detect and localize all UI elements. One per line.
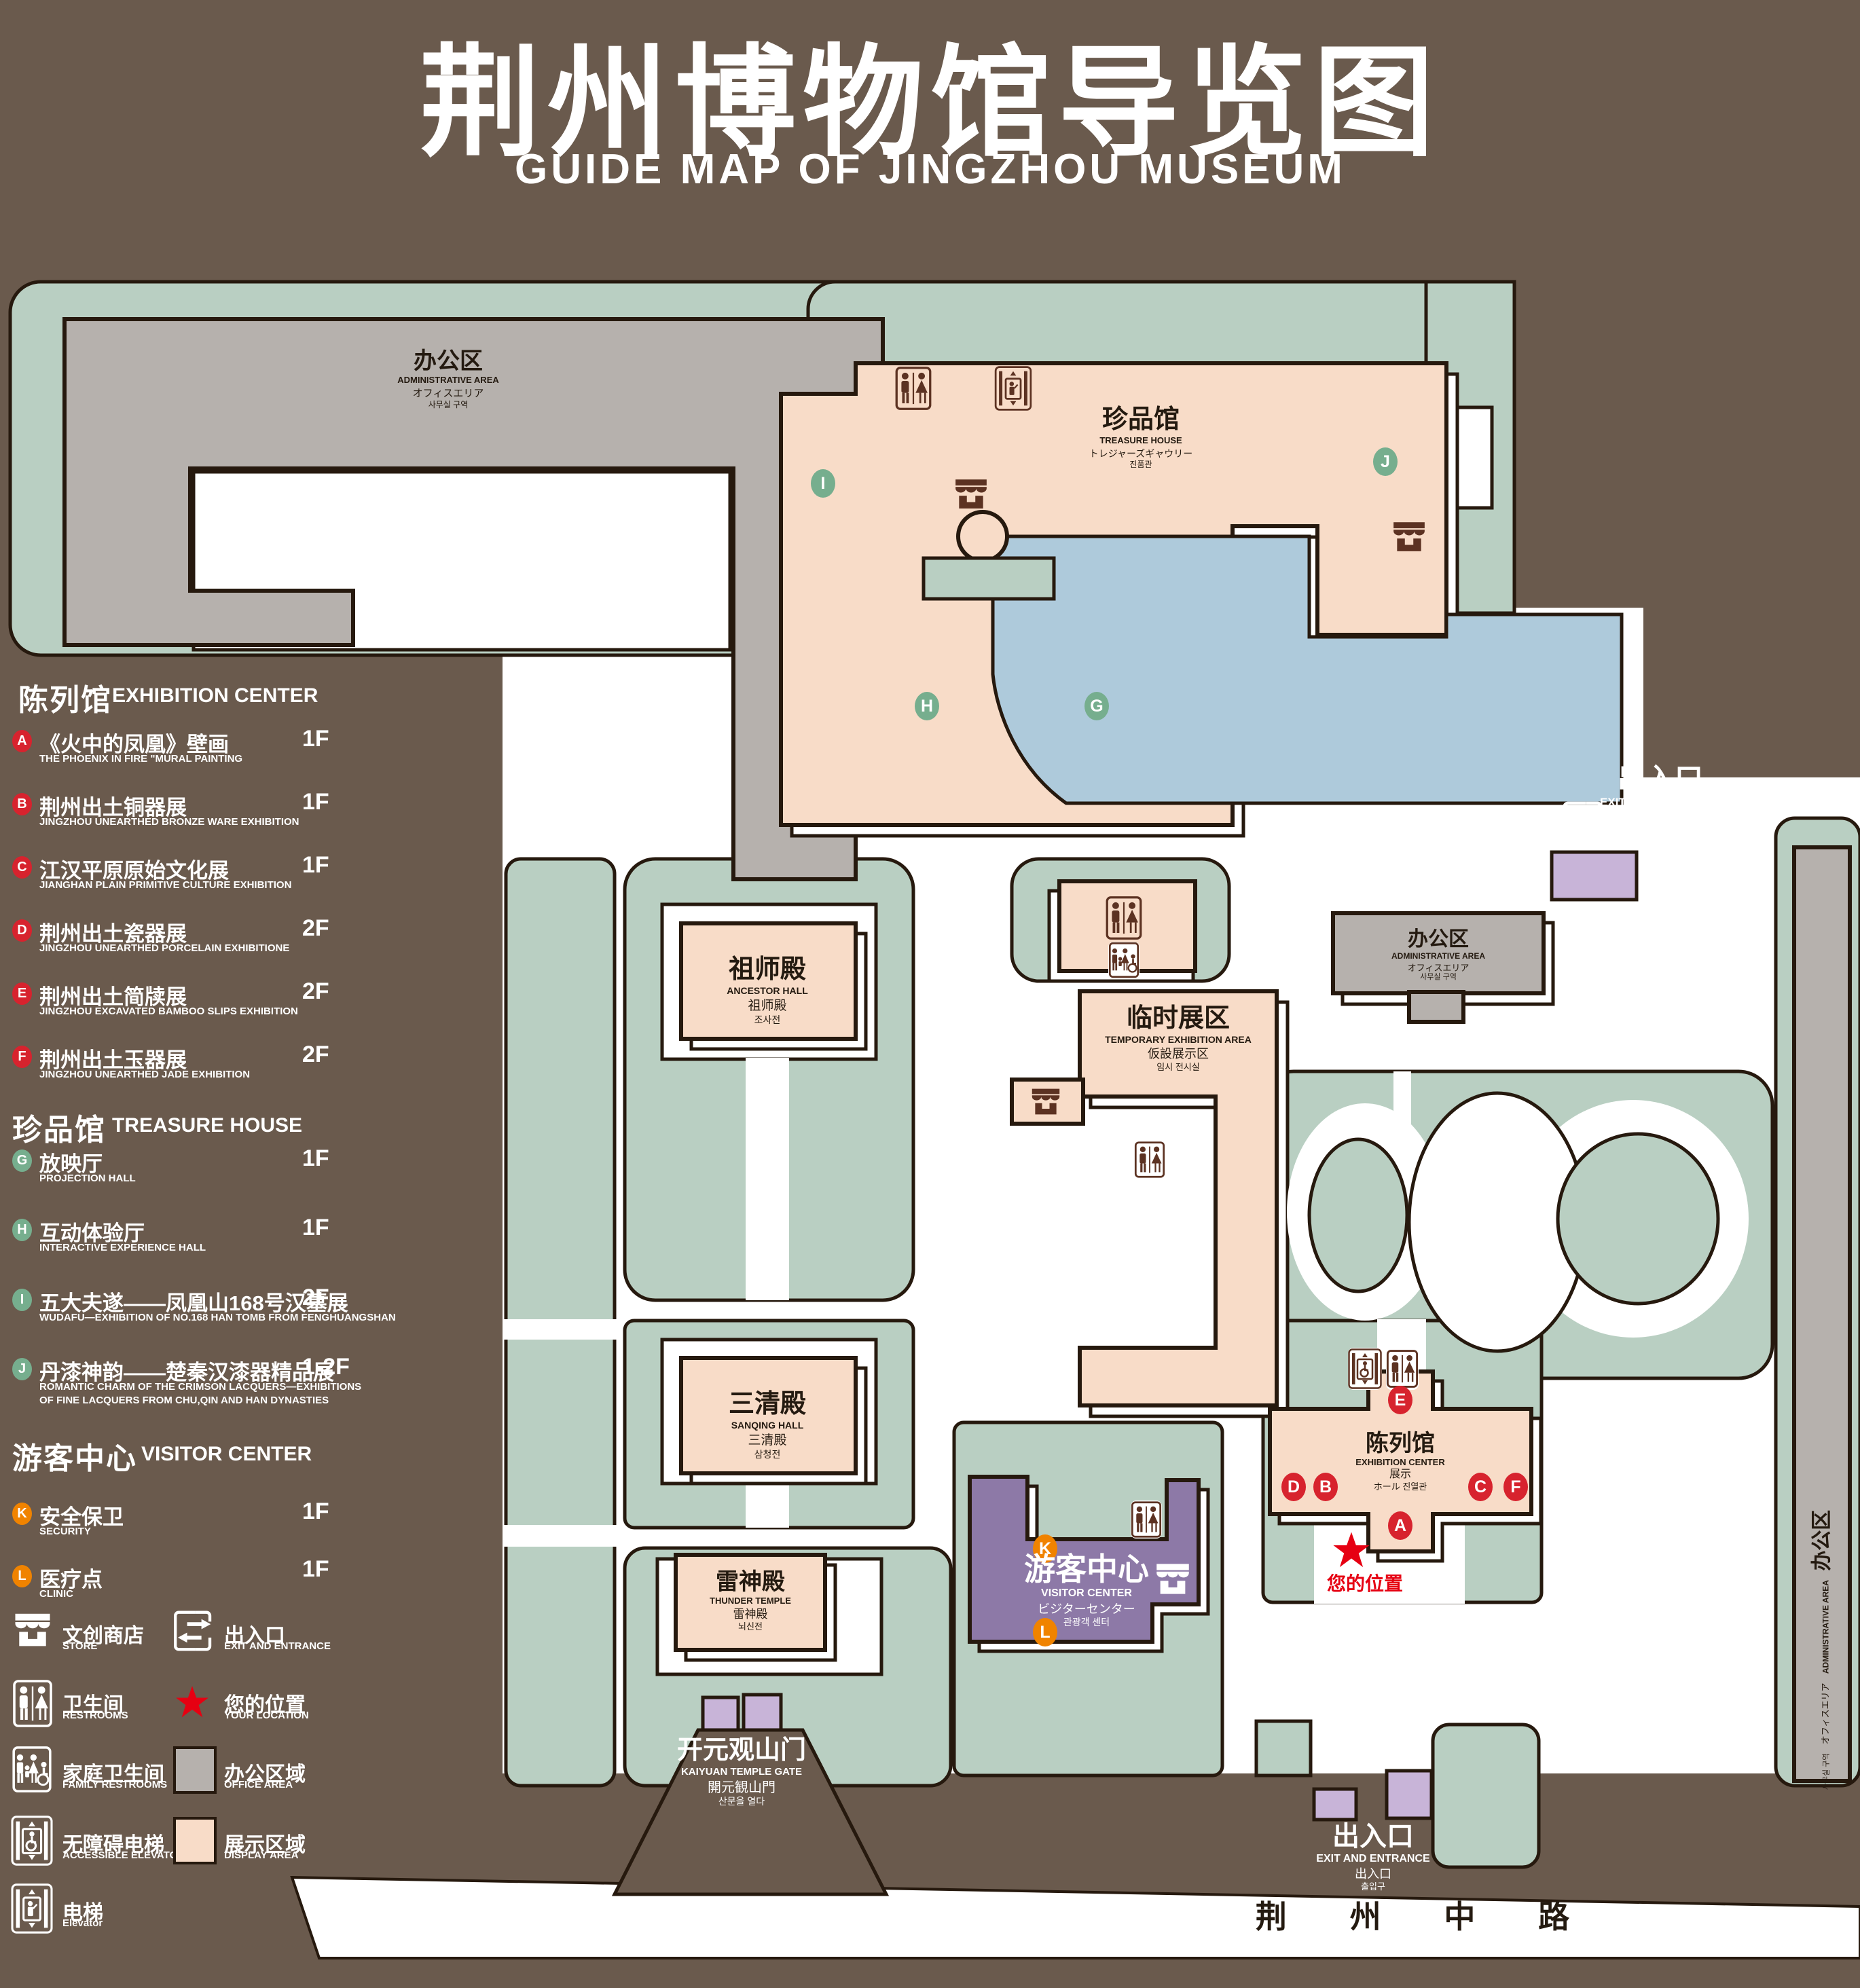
exit-entrance-icon [171, 1608, 213, 1654]
marker-I: I [811, 469, 835, 498]
marker-F: F [1503, 1473, 1528, 1501]
legend-badge-E: E [12, 982, 32, 1005]
restroom-icon [1131, 1501, 1162, 1539]
temporary-exhibition-label: 临时展区 TEMPORARY EXHIBITION AREA 仮設展示区 임시 … [1105, 1004, 1252, 1072]
road-label: 荆 州 中 路 [1256, 1898, 1597, 1935]
marker-D: D [1281, 1473, 1306, 1501]
legend-badge-A: A [12, 730, 32, 752]
thunder-temple-label: 雷神殿 THUNDER TEMPLE 雷神殿 뇌신전 [710, 1568, 791, 1632]
marker-A: A [1388, 1511, 1412, 1540]
guide-map-canvas: 荆州博物馆导览图 GUIDE MAP OF JINGZHOU MUSEUM I … [0, 0, 1860, 1988]
legend-badge-J: J [12, 1358, 32, 1380]
gate-kaiyuan-left [703, 1697, 738, 1730]
store-icon [1154, 1560, 1192, 1597]
section-title-en: EXHIBITION CENTER [112, 684, 318, 707]
marker-G: G [1084, 692, 1109, 720]
elevator-icon [994, 366, 1032, 411]
marker-C: C [1468, 1473, 1493, 1501]
legend-badge-D: D [12, 919, 32, 942]
admin-area-label: 办公区 ADMINISTRATIVE AREA オフィスエリア 사무실 구역 [397, 348, 499, 409]
accessible-elevator-icon [1348, 1348, 1382, 1390]
store-icon [1029, 1086, 1062, 1117]
restroom-icon [1134, 1141, 1165, 1179]
lake [993, 536, 1622, 803]
marker-E: E [1388, 1386, 1412, 1414]
office-area-swatch [173, 1746, 217, 1794]
your-location-star-icon [174, 1684, 211, 1719]
legend-badge-H: H [12, 1219, 32, 1241]
admin-area-east-label: 办公区 ADMINISTRATIVE AREA オフィスエリア 사무실 구역 [1391, 927, 1485, 982]
restroom-icon [1386, 1348, 1419, 1390]
kaiyuan-gate-label: 开元观山门 KAIYUAN TEMPLE GATE 開元観山門 산문을 열다 [677, 1735, 806, 1807]
gate-kaiyuan-right [744, 1695, 781, 1730]
treasure-house-balcony [958, 512, 1007, 561]
legend-badge-G: G [12, 1149, 32, 1172]
marker-J: J [1373, 447, 1398, 476]
green-small-block [1256, 1721, 1311, 1775]
your-location-label: 您的位置 [1327, 1572, 1403, 1595]
display-area-swatch [173, 1817, 217, 1864]
treasure-house-label: 珍品馆 TREASURE HOUSE トレジャーズギャウリー 진품관 [1089, 405, 1193, 469]
exit-east-label: 出入口 EXIT AND ENTRANCE 出入口 출입구 [1600, 762, 1721, 839]
accessible-elevator-icon [11, 1816, 53, 1866]
green-bottom-right [1433, 1725, 1539, 1867]
sanqing-hall-label: 三清殿 SANQING HALL 三清殿 삼청전 [729, 1389, 806, 1460]
restroom-icon [1105, 896, 1143, 940]
legend-badge-I: I [12, 1289, 32, 1311]
restroom-icon [12, 1679, 54, 1728]
gate-south-left [1314, 1789, 1356, 1820]
store-icon [1391, 519, 1427, 554]
store-icon [12, 1610, 54, 1649]
admin-area-vertical-label: 사무실 구역 オフィスエリア ADMINISTRATIVE AREA 办公区 [1809, 1510, 1835, 1790]
family-restroom-icon [11, 1746, 53, 1793]
exit-entrance-icon [1560, 798, 1605, 847]
family-restroom-icon [1108, 942, 1139, 978]
visitor-center-label: 游客中心 VISITOR CENTER ビジターセンター 관광객 센터 [1024, 1551, 1149, 1628]
elevator-icon [11, 1883, 53, 1934]
legend-badge-F: F [12, 1046, 32, 1068]
legend-badge-L: L [12, 1565, 32, 1587]
legend-badge-C: C [12, 856, 32, 879]
section-title-zh: 陈列馆 [18, 676, 112, 719]
exit-south-label: 出入口 EXIT AND ENTRANCE 出入口 출입구 [1316, 1821, 1429, 1892]
gate-south-right [1387, 1771, 1432, 1818]
store-icon [953, 476, 989, 511]
ancestor-hall-label: 祖师殿 ANCESTOR HALL 祖师殿 조사전 [727, 955, 808, 1025]
exhibition-center-label: 陈列馆 EXHIBITION CENTER 展示 ホール 진열관 [1355, 1430, 1444, 1492]
marker-H: H [915, 692, 939, 720]
gate-east [1552, 852, 1637, 900]
your-location-star-icon [1331, 1530, 1372, 1569]
marker-B: B [1313, 1473, 1338, 1501]
page-subtitle: GUIDE MAP OF JINGZHOU MUSEUM [515, 145, 1346, 194]
restroom-icon [894, 366, 932, 411]
legend-badge-B: B [12, 793, 32, 815]
legend-badge-K: K [12, 1503, 32, 1525]
